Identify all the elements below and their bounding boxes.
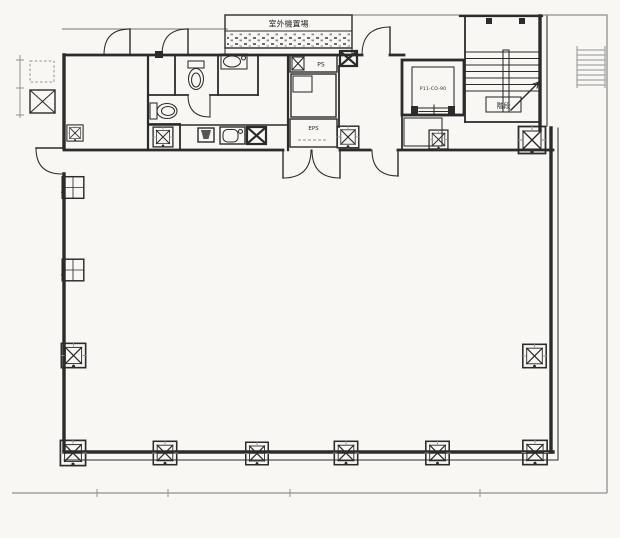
pipe-shaft-label: PS bbox=[317, 62, 325, 69]
external-ladder bbox=[577, 46, 605, 88]
counter-basin bbox=[220, 127, 245, 144]
rooftop-equipment bbox=[30, 61, 55, 113]
column-marker bbox=[336, 125, 360, 149]
duct-box bbox=[247, 127, 266, 144]
elevator-door-jamb bbox=[411, 106, 418, 114]
gravel-hatch bbox=[227, 33, 350, 47]
pipe-shaft: PS bbox=[290, 55, 337, 72]
outdoor-unit-area-label: 室外機置場 bbox=[269, 19, 309, 29]
shaft-rooms: PS EPS bbox=[288, 55, 339, 150]
hall-door bbox=[372, 150, 398, 176]
duct-space bbox=[291, 74, 336, 117]
stair-direction-line bbox=[511, 82, 539, 110]
door-swing-arc bbox=[372, 150, 398, 176]
electric-pipe-shaft: EPS bbox=[290, 119, 337, 147]
column-marker bbox=[333, 440, 359, 466]
toilet-block bbox=[148, 54, 266, 150]
door-swing-arc bbox=[362, 27, 390, 55]
column-marker bbox=[428, 129, 449, 150]
floor-plan-page: 室外機置場 bbox=[0, 0, 620, 538]
electric-pipe-shaft-label: EPS bbox=[308, 126, 319, 132]
stairs-label: 階段 bbox=[497, 101, 511, 110]
balcony-access-door bbox=[362, 27, 390, 55]
door-swing-arc bbox=[36, 148, 62, 174]
door-swing-arc bbox=[104, 29, 130, 55]
toilet-fixture bbox=[150, 103, 177, 119]
equipment-unit bbox=[30, 90, 55, 113]
staircase: 階段 bbox=[465, 16, 540, 122]
door-swing-arc bbox=[283, 150, 311, 178]
column-marker bbox=[522, 439, 549, 466]
wall-post bbox=[155, 51, 163, 58]
elevator-door-jamb bbox=[448, 106, 455, 114]
elevator-label: P11-CO-90 bbox=[420, 86, 447, 92]
toilet-fixture bbox=[188, 61, 204, 90]
mop-sink bbox=[198, 128, 214, 142]
west-exit-door bbox=[36, 148, 62, 174]
column-marker bbox=[522, 343, 548, 369]
door-swing-arc bbox=[162, 29, 188, 55]
column-marker bbox=[152, 440, 178, 466]
column-marker bbox=[152, 126, 174, 148]
door-swing-arc bbox=[312, 150, 340, 178]
door-swing-arc bbox=[188, 95, 210, 117]
column-marker bbox=[425, 440, 451, 466]
column-marker bbox=[245, 441, 270, 466]
landing-post bbox=[519, 18, 525, 24]
column-marker bbox=[66, 124, 84, 142]
structural-columns bbox=[59, 124, 549, 467]
stair-treads bbox=[466, 52, 538, 91]
duct-box bbox=[340, 51, 357, 66]
exterior-walls bbox=[64, 16, 558, 460]
elevator: P11-CO-90 bbox=[402, 60, 464, 150]
outdoor-unit-area: 室外機置場 bbox=[225, 15, 352, 55]
equipment-dashed-pad bbox=[30, 61, 54, 82]
landing-post bbox=[486, 18, 492, 24]
entrance-double-door bbox=[283, 150, 340, 178]
site-boundary bbox=[12, 15, 607, 497]
floor-plan-canvas: 室外機置場 bbox=[0, 0, 620, 538]
